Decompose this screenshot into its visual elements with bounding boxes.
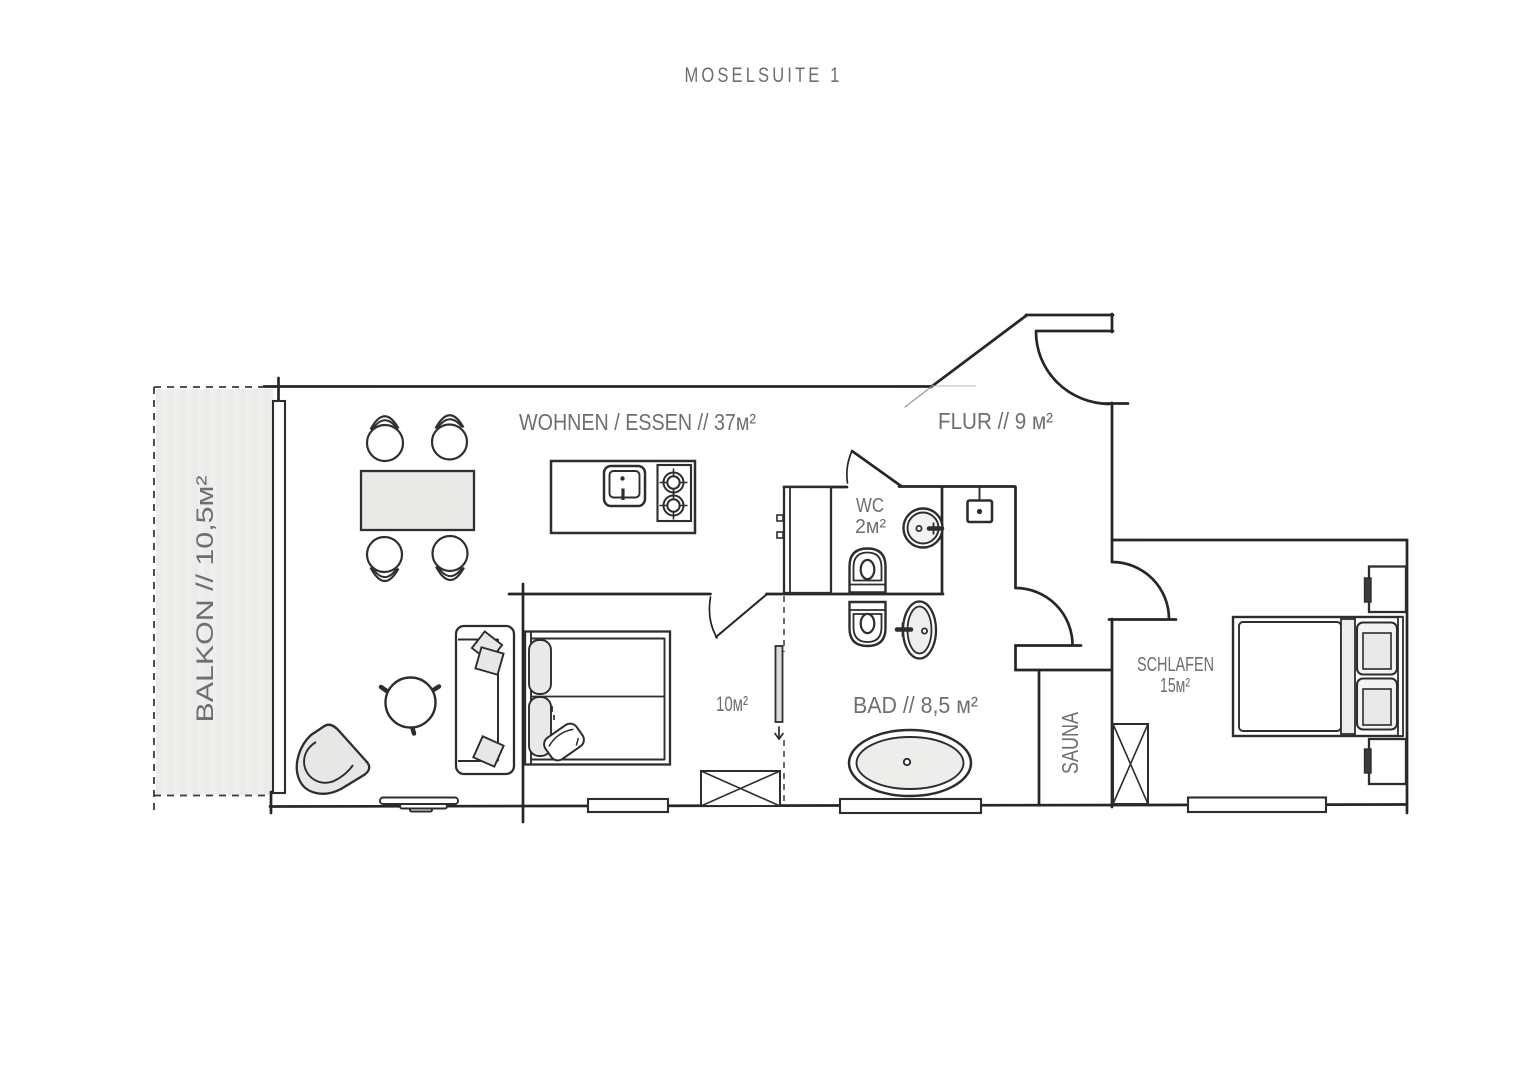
svg-text:2м²: 2м² (855, 516, 886, 538)
svg-text:15м²: 15м² (1160, 675, 1190, 697)
svg-text:10м²: 10м² (716, 693, 748, 716)
svg-text:WC: WC (856, 495, 884, 517)
svg-text:FLUR // 9 м²: FLUR // 9 м² (938, 408, 1053, 434)
svg-text:BALKON // 10,5м²: BALKON // 10,5м² (192, 475, 219, 722)
svg-text:SCHLAFEN: SCHLAFEN (1137, 654, 1214, 676)
svg-text:BAD // 8,5 м²: BAD // 8,5 м² (853, 692, 978, 718)
svg-text:WOHNEN / ESSEN // 37м²: WOHNEN / ESSEN // 37м² (519, 409, 756, 435)
svg-text:MOSELSUITE 1: MOSELSUITE 1 (685, 64, 843, 87)
svg-text:SAUNA: SAUNA (1057, 711, 1083, 774)
